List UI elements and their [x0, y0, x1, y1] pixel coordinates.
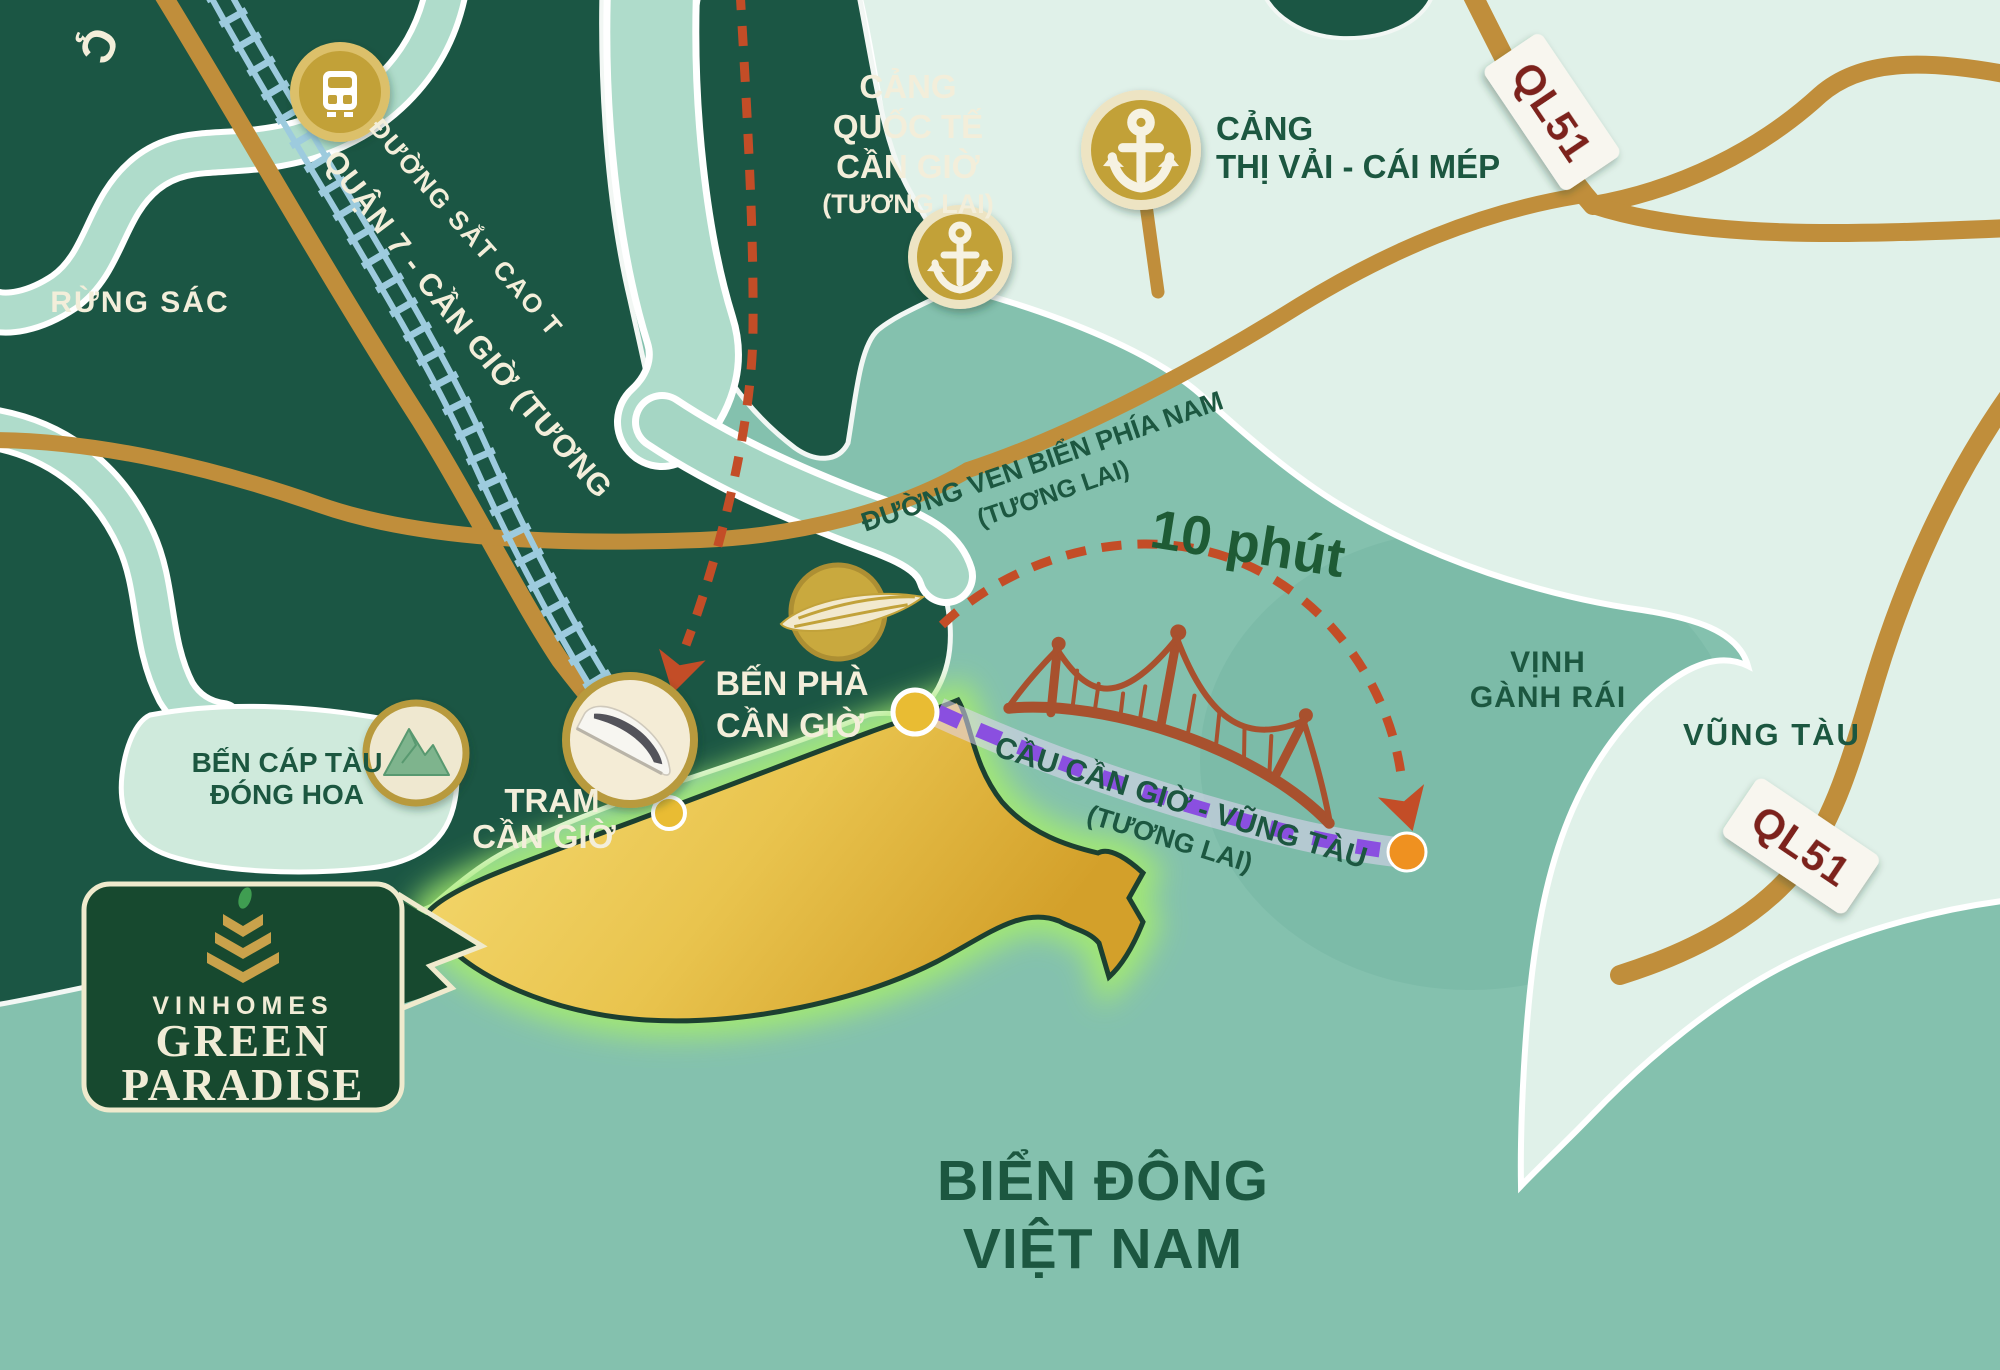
svg-text:CẦN GIỜ: CẦN GIỜ [472, 818, 617, 855]
svg-text:(TƯƠNG LAI): (TƯƠNG LAI) [822, 189, 993, 219]
svg-text:VIỆT NAM: VIỆT NAM [963, 1216, 1243, 1281]
can-gio-location-map: QL51 QL51 Ç RỪNG SÁC ĐƯỜNG SẮT CAO TỐC Q… [0, 0, 2000, 1370]
bridge-end-dot [1388, 833, 1426, 871]
svg-text:BẾN PHÀ: BẾN PHÀ [715, 665, 868, 703]
svg-text:ĐÓNG HOA: ĐÓNG HOA [210, 779, 364, 810]
rung-sac-label: RỪNG SÁC [50, 285, 229, 319]
map-canvas: QL51 QL51 Ç RỪNG SÁC ĐƯỜNG SẮT CAO TỐC Q… [0, 0, 2000, 1370]
logo-name-line1: GREEN [155, 1016, 330, 1066]
svg-text:THỊ VẢI - CÁI MÉP: THỊ VẢI - CÁI MÉP [1216, 148, 1500, 185]
vung-tau-label: VŨNG TÀU [1683, 716, 1861, 752]
logo-name-line2: PARADISE [122, 1060, 365, 1110]
svg-text:VỊNH: VỊNH [1510, 646, 1586, 679]
svg-text:BẾN CÁP TÀU: BẾN CÁP TÀU [192, 747, 383, 778]
ben-cap-tau-label: BẾN CÁP TÀU ĐÓNG HOA [192, 747, 383, 810]
bridge-start-dot [893, 690, 937, 734]
svg-text:GÀNH RÁI: GÀNH RÁI [1470, 680, 1626, 714]
svg-text:QUỐC TẾ: QUỐC TẾ [833, 107, 983, 145]
svg-text:TRẠM: TRẠM [504, 782, 599, 819]
svg-text:CẢNG: CẢNG [859, 68, 956, 105]
svg-text:CẦN GIỜ: CẦN GIỜ [836, 148, 981, 185]
anchor-icon [908, 205, 1012, 309]
svg-text:BIỂN ĐÔNG: BIỂN ĐÔNG [937, 1148, 1269, 1213]
anchor-icon [1081, 90, 1201, 210]
svg-text:CẢNG: CẢNG [1216, 110, 1313, 147]
svg-text:CẦN GIỜ: CẦN GIỜ [716, 707, 864, 745]
